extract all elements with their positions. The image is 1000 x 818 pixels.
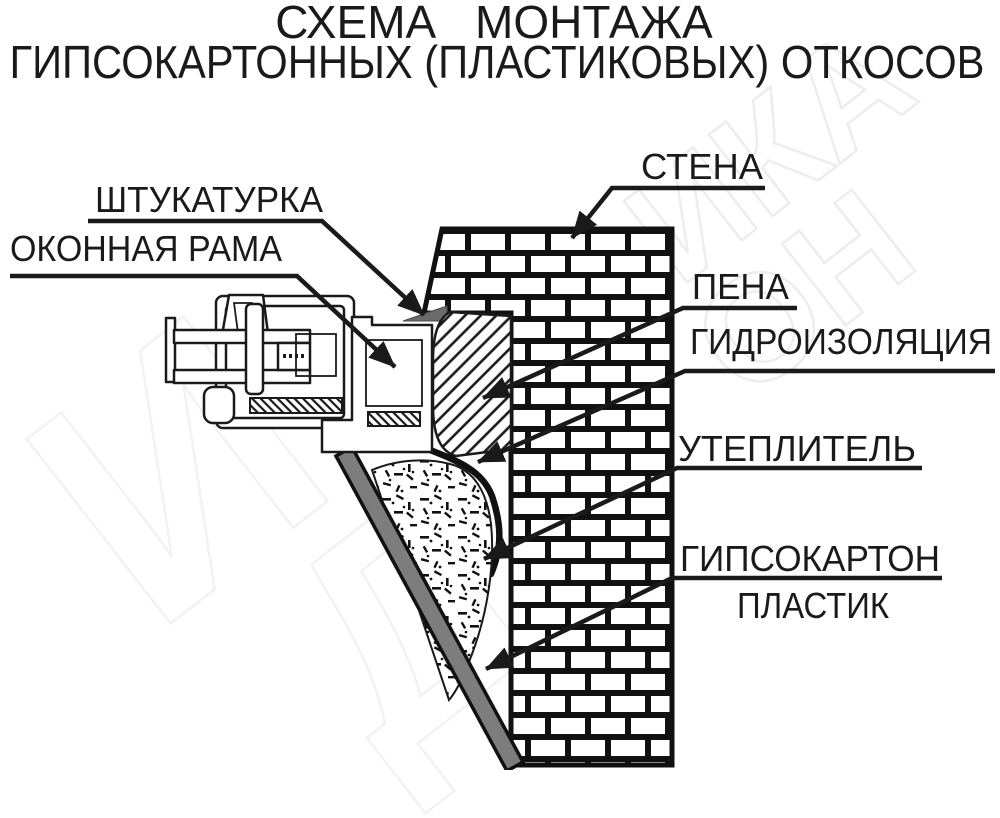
- glass-pane-outer: [174, 330, 310, 343]
- label-wall: СТЕНА: [641, 146, 763, 187]
- sash-foot: [204, 387, 234, 423]
- glass-spacer: [278, 343, 310, 370]
- label-drywall: ГИПСОКАРТОН: [680, 538, 940, 579]
- window-frame-section: [166, 295, 432, 452]
- label-insulation: УТЕПЛИТЕЛЬ: [678, 428, 916, 469]
- foam-area: [433, 312, 511, 456]
- label-plastic: ПЛАСТИК: [737, 585, 889, 626]
- label-waterproofing: ГИДРОИЗОЛЯЦИЯ: [690, 321, 992, 362]
- label-foam: ПЕНА: [692, 266, 789, 307]
- insulation-area: [372, 460, 492, 700]
- label-window-frame: ОКОННАЯ РАМА: [10, 228, 282, 269]
- glazing-bead: [246, 304, 263, 394]
- sash-seal-strip: [250, 398, 342, 413]
- frame-seal-strip: [368, 412, 420, 426]
- diagram-title-line2: ГИПСОКАРТОННЫХ (ПЛАСТИКОВЫХ) ОТКОСОВ: [10, 36, 985, 88]
- label-plaster: ШТУКАТУРКА: [95, 179, 323, 220]
- installation-scheme-diagram: СХЕМА МОНТАЖА ГИПСОКАРТОННЫХ (ПЛАСТИКОВЫ…: [0, 0, 1000, 770]
- glass-pane-inner: [174, 370, 310, 383]
